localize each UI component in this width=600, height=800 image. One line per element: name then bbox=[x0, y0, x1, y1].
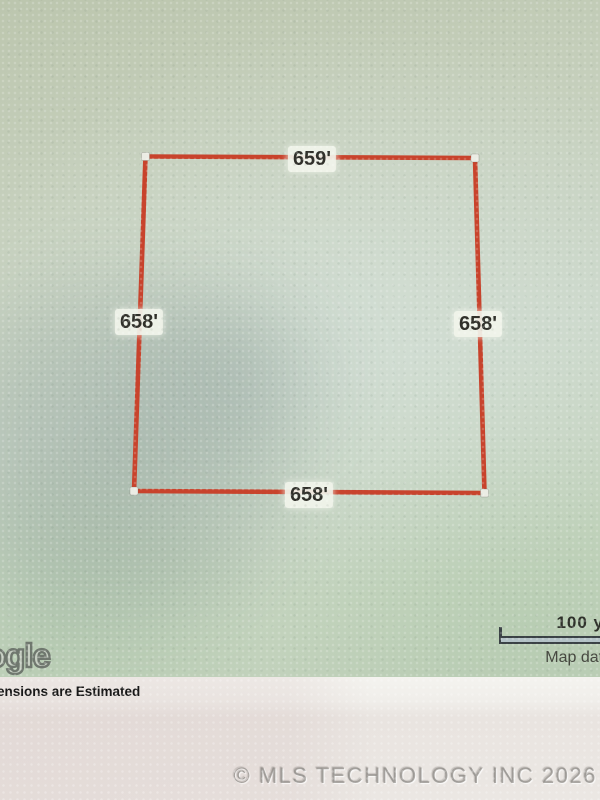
google-logo: ogle bbox=[0, 637, 50, 675]
corner-marker bbox=[471, 154, 479, 162]
parcel-boundary bbox=[0, 0, 600, 677]
dimension-label-left: 658' bbox=[115, 309, 163, 335]
dimension-label-bottom: 658' bbox=[285, 482, 333, 508]
map-area: 659' 658' 658' 658' ogle 100 y Map data bbox=[0, 0, 600, 677]
corner-marker bbox=[130, 487, 138, 495]
dimension-label-right: 658' bbox=[454, 311, 502, 337]
corner-marker bbox=[142, 153, 150, 161]
document-paper: ensions are Estimated © MLS TECHNOLOGY I… bbox=[0, 677, 600, 800]
scale-bar-label: 100 y bbox=[556, 613, 600, 633]
scale-bar-rule bbox=[499, 636, 600, 644]
corner-marker bbox=[481, 489, 489, 497]
scale-bar: 100 y Map data bbox=[480, 611, 600, 671]
dimensions-disclaimer: ensions are Estimated bbox=[0, 684, 140, 699]
scanned-map-photo: 659' 658' 658' 658' ogle 100 y Map data … bbox=[0, 0, 600, 800]
mls-watermark: © MLS TECHNOLOGY INC 2026 bbox=[234, 763, 597, 789]
map-attribution: Map data bbox=[545, 649, 600, 667]
dimension-label-top: 659' bbox=[288, 146, 336, 172]
